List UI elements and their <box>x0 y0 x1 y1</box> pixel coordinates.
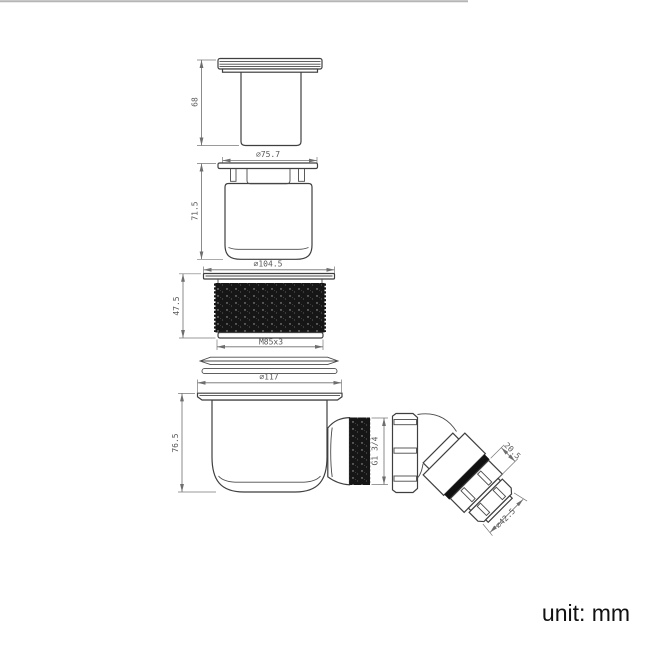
trap-flange <box>198 393 343 400</box>
dim-label-thread-flange-diameter: ⌀104.5 <box>254 260 283 269</box>
collar-thread <box>216 283 325 333</box>
technical-drawing: 68 ⌀75.7 71.5 ⌀104.5 <box>0 0 650 650</box>
dim-cap-diameter: ⌀75.7 <box>223 150 318 164</box>
basket-body <box>225 184 312 260</box>
dim-label-insert-height: 71.5 <box>191 201 200 220</box>
dim-body-flange-diameter: ⌀117 <box>198 373 342 393</box>
dim-body-height: 76.5 <box>171 393 216 492</box>
dim-insert-height: 71.5 <box>191 164 224 260</box>
cap-flange-lip <box>223 69 318 72</box>
dim-label-outlet-thread: G1 3/4 <box>371 436 380 465</box>
basket-recess <box>247 169 290 184</box>
dim-label-elbow-section-length: 20.5 <box>502 441 522 461</box>
cap-cylinder <box>241 72 301 146</box>
basket-tab-right <box>299 169 305 182</box>
dim-thread-height: 47.5 <box>172 274 216 338</box>
trap-body <box>212 400 327 492</box>
gasket-washers-drawing <box>200 357 338 373</box>
unit-note: unit: mm <box>542 600 630 626</box>
dim-outlet-thread: G1 3/4 <box>371 418 389 485</box>
dim-label-cap-diameter: ⌀75.7 <box>256 150 280 159</box>
basket-flange <box>218 163 318 169</box>
outlet-thread <box>350 418 371 486</box>
bend-inner-arc <box>418 464 424 478</box>
threaded-collar-drawing <box>204 274 335 339</box>
dim-label-cap-height: 68 <box>191 97 200 107</box>
bend-outer-arc <box>418 414 457 432</box>
dim-thread-flange-diameter: ⌀104.5 <box>204 260 335 274</box>
trap-body-drawing <box>198 393 371 492</box>
dim-thread-spec: M85x3 <box>217 338 323 351</box>
dim-label-thread-height: 47.5 <box>172 296 181 315</box>
elbow-drawing: 20.5 ⌀42.5 <box>417 409 549 541</box>
basket-tab-left <box>231 169 237 182</box>
cover-cap-drawing <box>218 59 322 146</box>
dim-cap-height: 68 <box>191 60 240 146</box>
basket-insert-drawing <box>218 163 318 259</box>
dim-label-body-flange-diameter: ⌀117 <box>259 373 278 382</box>
dim-label-body-height: 76.5 <box>171 433 180 452</box>
dim-label-thread-spec: M85x3 <box>259 338 283 347</box>
